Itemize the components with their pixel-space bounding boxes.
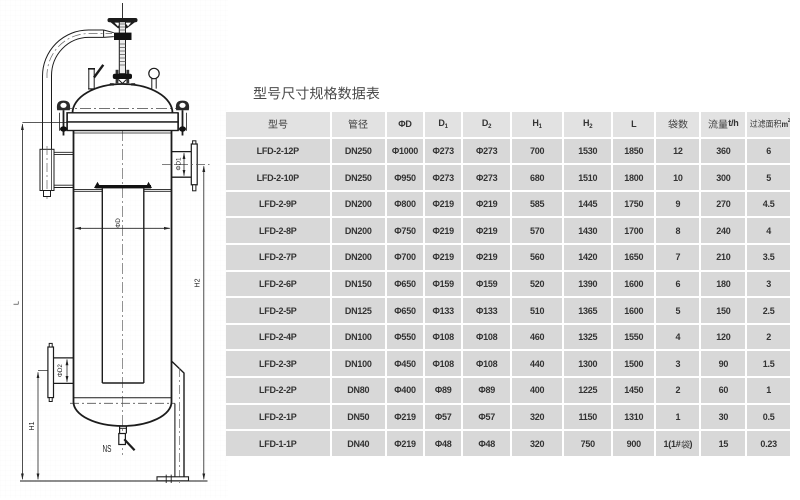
- svg-text:ΦD1: ΦD1: [176, 157, 183, 171]
- svg-text:NS: NS: [103, 443, 112, 455]
- svg-text:H2: H2: [195, 278, 202, 287]
- svg-text:ΦD2: ΦD2: [57, 364, 64, 378]
- svg-text:L: L: [12, 301, 21, 305]
- svg-text:H1: H1: [29, 421, 36, 430]
- svg-text:ΦD: ΦD: [115, 218, 122, 228]
